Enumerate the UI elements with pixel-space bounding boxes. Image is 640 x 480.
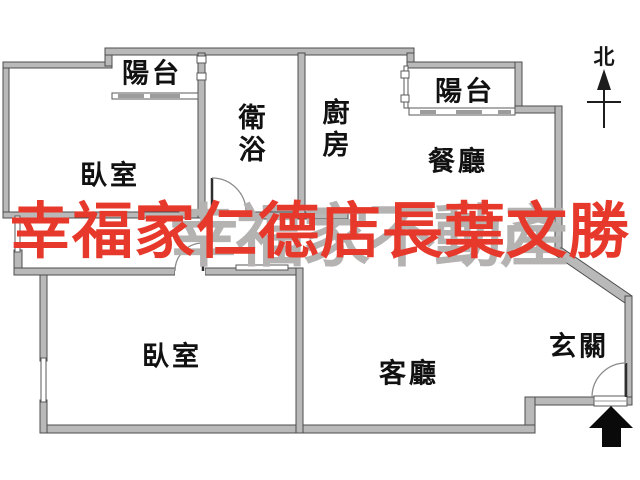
entrance-arrow-icon: [589, 406, 633, 447]
room-label-kitchen: 廚房: [321, 98, 351, 162]
wall-bed2-living: [296, 268, 303, 433]
balcony1-window-sash: [118, 94, 144, 98]
floor-plan-canvas: 陽台 臥室 衛浴 廚房 陽台 餐廳 臥室 客廳 玄關 北 幸福家不動產 幸福家仁…: [0, 0, 640, 480]
wall-top-b: [105, 48, 414, 55]
balcony1-door-pivot: [197, 56, 206, 63]
balcony2-window-sash: [420, 110, 436, 114]
wall-middle-left: [14, 268, 175, 275]
room-label-bathroom: 衛浴: [237, 103, 267, 167]
wall-top-c: [407, 62, 522, 68]
north-arrow-icon: [587, 69, 621, 128]
wall-entry-bottom: [530, 397, 595, 405]
wall-bottom: [40, 425, 535, 433]
entry-door: [592, 363, 626, 397]
watermark-red-agent: 幸福家仁德店長葉文勝: [10, 201, 630, 262]
room-label-balcony-top-left: 陽台: [122, 61, 182, 88]
room-label-bedroom-top: 臥室: [80, 163, 140, 190]
room-label-dining-room: 餐廳: [428, 149, 488, 176]
wall-bed2-left-upper: [40, 268, 47, 361]
bedroom2-window: [41, 358, 46, 402]
balcony2-door-hinge: [401, 95, 409, 102]
room-label-entryway: 玄關: [549, 334, 609, 361]
balcony2-window-sash: [498, 110, 511, 114]
wall-top-a: [3, 62, 112, 68]
balcony1-window-sash: [150, 94, 180, 98]
balcony2-door-hinge: [401, 71, 409, 78]
wall-bath-kitchen: [298, 53, 305, 218]
room-label-balcony-top-right: 陽台: [435, 79, 495, 106]
balcony1-door-pivot: [197, 73, 206, 80]
wall-left-upper: [3, 62, 9, 215]
wall-balcony2-right: [515, 62, 522, 113]
room-label-bedroom-bottom: 臥室: [142, 344, 202, 371]
wall-bed2-left-lower: [40, 400, 47, 433]
room-label-living-room: 客廳: [379, 361, 439, 388]
balcony2-window-sash: [456, 110, 482, 114]
north-label: 北: [594, 41, 615, 71]
